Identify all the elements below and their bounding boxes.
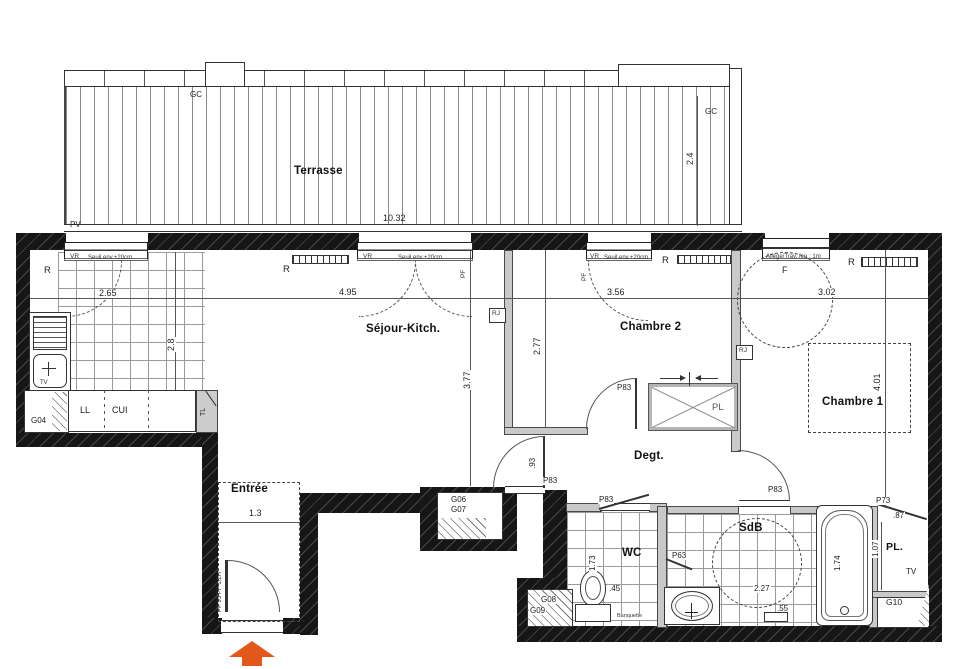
dim-wc-depth: 1.73 [589,554,597,572]
bench [764,612,788,622]
wall-wc-west [543,490,567,592]
dim-line-horizontal [30,298,928,299]
entree-zone [218,482,300,622]
wall-entree-right [300,493,318,635]
dim-sdb-width: 2.27 [753,585,771,593]
window-label-vr: VR [590,254,599,261]
terrace-decking [64,86,742,226]
label-tv: TV [40,380,48,386]
wall-bottom [517,626,942,642]
terrace-edge [64,224,742,232]
dim-degt: .93 [529,457,537,470]
rj-outlet-label: RJ [739,348,747,355]
door-label-p83: P83 [598,496,614,504]
washer-label: LL [80,406,90,415]
dim-sejour-depth: 3.77 [463,370,472,390]
faucet-icon [42,368,56,369]
window-swing [415,261,472,317]
wall-right [928,248,942,640]
sliding-door-arrow-head [680,375,689,381]
wall-kitchen-bottom [16,433,214,447]
dim-sejour-width: 4.95 [338,288,358,297]
duct-g04-hatch [52,392,67,431]
door-label-p83: P83 [767,486,783,494]
partition-sejour-ch2 [504,250,513,435]
sliding-door-arrow [660,378,682,379]
dim-pl-width: .87 [892,512,905,520]
duct-g09-label: G09 [529,607,546,615]
radiator [861,257,918,267]
toilet-tank [575,604,611,622]
room-label-wc: WC [622,548,642,560]
radiator-label: R [44,266,51,276]
cabinet-divider [104,390,105,432]
dim-line [697,96,698,226]
dim-kitchen-depth: 2.8 [167,337,176,352]
dim-ch2-depth: 2.77 [533,336,542,356]
rj-outlet-label: RJ [492,311,500,318]
room-label-sejour: Séjour-Kitch. [366,324,440,336]
duct-g07-label: G07 [450,506,467,514]
door-label-p83: P83 [542,477,558,485]
tl-board-label: TL [200,408,207,416]
sliding-door-tick [689,372,690,386]
cabinet-divider [148,390,149,432]
entrance-arrow-stem [242,656,262,666]
turning-circle-chambre1 [737,252,833,348]
guardrail-label-gc: GC [705,108,717,116]
closet-pl-label: PL. [886,542,903,553]
sliding-door-arrow-head [692,375,701,381]
bed-outline [808,343,911,433]
partition-ch2-bottom [504,427,588,435]
partition-wc-top [566,503,602,512]
door-label-p63: P63 [671,552,687,560]
duct-g06-label: G06 [450,496,467,504]
bathtub-inner2 [825,514,864,617]
cooker-label: CUI [112,406,128,415]
room-label-sdb: SdB [739,523,763,535]
label-pv: PV [70,221,81,229]
terrace-rail-post-box [205,62,245,87]
faucet-icon [48,362,49,376]
window-label-vr: VR [363,254,372,261]
dim-wc-width: .45 [608,585,621,593]
duct-g10-label: G10 [886,598,902,607]
wall-corridor [300,493,437,513]
window-swing [359,261,416,317]
washbasin [671,591,713,621]
window-label-vr: VR [70,254,79,261]
door-label-p73: P73 [875,497,891,505]
dim-line [545,250,546,427]
duct-g06-hatch [438,518,486,539]
guardrail-label-gc: GC [190,91,202,99]
entrance-arrow-icon [229,641,275,657]
banquette-label: Banquette [616,614,643,620]
wall-entree-left [202,433,218,632]
dim-ch1-width: 3.02 [817,288,837,297]
wall [148,233,359,250]
duct-g08-label: G08 [540,596,557,604]
wall [471,233,588,250]
dim-line [881,522,882,590]
faucet-icon [691,603,692,619]
duct-g04-label: G04 [30,417,47,425]
dim-terrace-width: 10.32 [383,214,406,223]
kitchen-sink [33,354,67,388]
radiator [677,255,731,264]
wall [651,233,765,250]
room-label-chambre2: Chambre 2 [620,322,681,334]
dim-bath: 1.74 [834,554,842,572]
room-label-degt: Degt. [634,451,664,463]
dim-pl-depth: 1.07 [872,540,880,558]
radiator [292,255,349,264]
dim-terrace-depth: 2.4 [686,152,695,165]
terrace-rail-post-box [618,64,730,87]
radiator-label: R [283,265,290,275]
floor-plan: Terrasse GC GC PV 10.32 2.4 VR Seuil env… [0,0,964,669]
dim-line [470,250,471,486]
door-sill [739,500,790,507]
door-label-p83: P83 [616,384,632,392]
partition-sdb-top [667,506,739,514]
terrace-corner-post [729,68,742,228]
bathtub-drain [840,606,849,615]
room-label-terrasse: Terrasse [294,166,343,178]
entree-line [218,522,300,523]
dim-entree: 1.3 [249,509,262,518]
faucet-icon [685,612,698,613]
closet-ch2-label: PL [712,403,724,413]
window-label-pf: PF [582,273,589,281]
radiator-label: R [662,256,669,266]
dim-kitchen-width: 2.65 [98,289,118,298]
toilet-bowl-inner [585,576,601,600]
dim-ch2-width: 3.56 [606,288,626,297]
radiator-label: R [848,258,855,268]
kitchen-drainer [33,316,67,350]
label-tv: TV [906,568,916,576]
wall [829,233,942,250]
